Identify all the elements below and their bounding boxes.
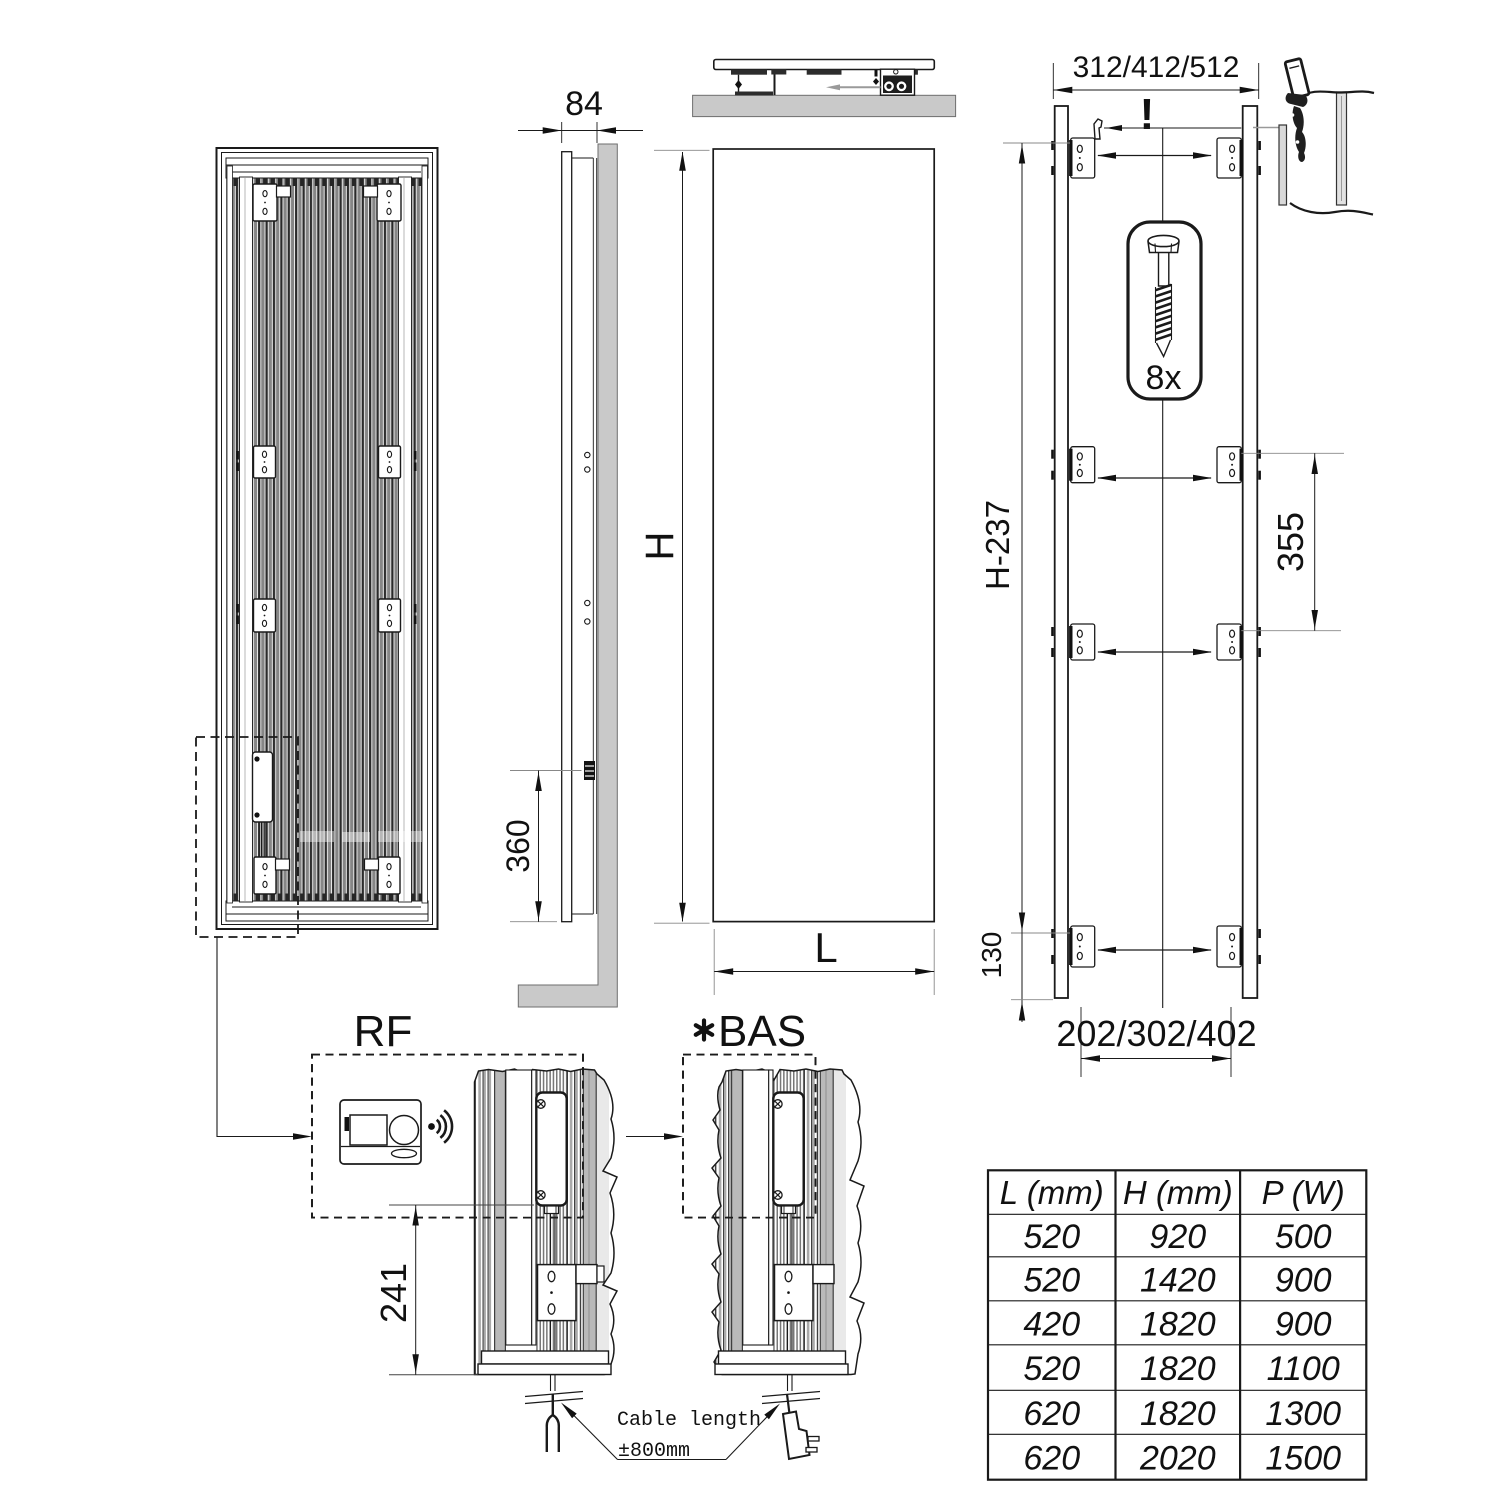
svg-text:241: 241 bbox=[373, 1263, 414, 1323]
svg-text:355: 355 bbox=[1270, 512, 1311, 572]
svg-text:L: L bbox=[814, 924, 837, 971]
svg-text:520: 520 bbox=[1023, 1218, 1080, 1256]
svg-text:!: ! bbox=[1140, 90, 1155, 139]
svg-text:1300: 1300 bbox=[1265, 1395, 1341, 1433]
svg-text:312/412/512: 312/412/512 bbox=[1073, 51, 1240, 84]
svg-text:500: 500 bbox=[1275, 1218, 1332, 1256]
svg-text:1820: 1820 bbox=[1140, 1395, 1216, 1433]
svg-text:520: 520 bbox=[1023, 1350, 1080, 1388]
svg-text:620: 620 bbox=[1023, 1440, 1080, 1478]
svg-text:H: H bbox=[638, 532, 682, 561]
svg-text:520: 520 bbox=[1023, 1261, 1080, 1299]
svg-text:BAS: BAS bbox=[718, 1007, 806, 1056]
svg-text:900: 900 bbox=[1275, 1305, 1332, 1343]
svg-text:Cable length: Cable length bbox=[617, 1409, 761, 1432]
svg-text:900: 900 bbox=[1275, 1261, 1332, 1299]
svg-text:202/302/402: 202/302/402 bbox=[1056, 1013, 1256, 1054]
svg-text:RF: RF bbox=[354, 1007, 413, 1056]
svg-text:H (mm): H (mm) bbox=[1123, 1174, 1233, 1211]
svg-text:1100: 1100 bbox=[1267, 1350, 1340, 1388]
svg-text:620: 620 bbox=[1023, 1395, 1080, 1433]
svg-text:130: 130 bbox=[976, 932, 1007, 979]
svg-text:8x: 8x bbox=[1146, 359, 1182, 397]
svg-text:1820: 1820 bbox=[1140, 1350, 1216, 1388]
svg-text:420: 420 bbox=[1023, 1305, 1080, 1343]
svg-text:360: 360 bbox=[500, 819, 536, 872]
svg-text:L (mm): L (mm) bbox=[1000, 1174, 1104, 1211]
svg-text:1420: 1420 bbox=[1140, 1261, 1216, 1299]
svg-text:84: 84 bbox=[565, 85, 603, 123]
svg-text:1500: 1500 bbox=[1265, 1440, 1341, 1478]
svg-text:P (W): P (W) bbox=[1262, 1174, 1345, 1211]
svg-text:920: 920 bbox=[1149, 1218, 1206, 1256]
svg-text:H-237: H-237 bbox=[979, 500, 1016, 590]
svg-text:2020: 2020 bbox=[1139, 1440, 1216, 1478]
svg-text:±800mm: ±800mm bbox=[618, 1440, 690, 1463]
svg-text:1820: 1820 bbox=[1140, 1305, 1216, 1343]
